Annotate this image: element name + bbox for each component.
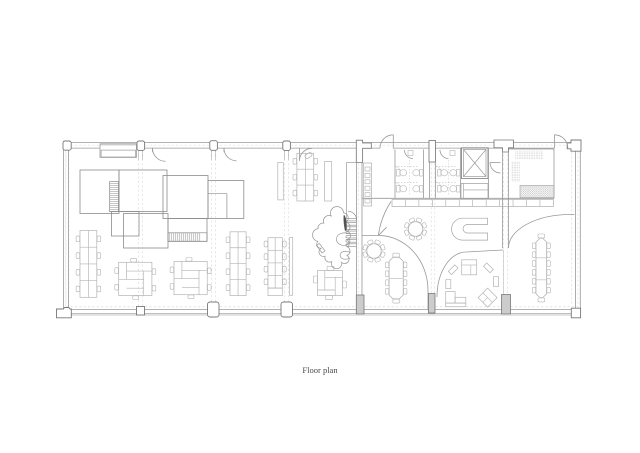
svg-text:Floor plan: Floor plan: [302, 365, 338, 375]
